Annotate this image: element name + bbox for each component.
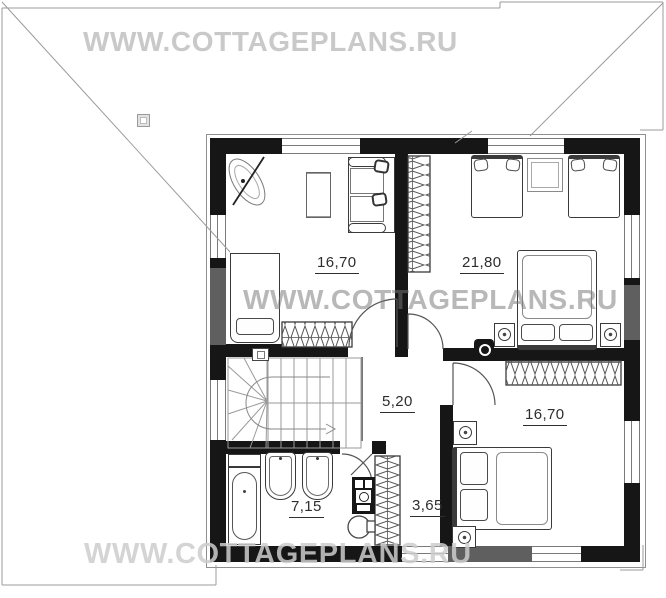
plant-decor [222, 153, 272, 211]
room-area-label-nursery: 21,80 [460, 255, 504, 272]
coffee-table [306, 172, 331, 218]
tap-icon [279, 457, 282, 460]
watermark-bottom: WWW.COTTAGEPLANS.RU [84, 538, 472, 571]
shaft-vent [355, 480, 363, 488]
stair-post-marker [252, 348, 269, 361]
tap-icon [316, 457, 319, 460]
shaft-vent [357, 505, 370, 511]
pillow-child-2b [602, 158, 618, 172]
pillow-nursery-b [559, 324, 593, 341]
nightstand-bedroom-top [453, 421, 477, 445]
toilet [348, 516, 375, 538]
pillow-living [236, 318, 274, 335]
staircase [228, 358, 361, 448]
watermark-middle: WWW.COTTAGEPLANS.RU [243, 284, 618, 316]
lamp-icon [604, 328, 617, 341]
pillow-child-2a [570, 158, 585, 172]
bathtub-drain [243, 490, 246, 493]
shaft-vent [365, 480, 372, 488]
bathtub-basin [232, 472, 257, 540]
door-nursery [408, 314, 443, 349]
door-bedroom [453, 363, 495, 405]
watermark-top: WWW.COTTAGEPLANS.RU [83, 26, 458, 58]
pillow-bedroom-b [460, 489, 488, 521]
sink-1 [265, 452, 296, 500]
sink-2 [302, 452, 333, 500]
sofa-pillow-1 [373, 159, 390, 174]
room-area-label-bathroom: 7,15 [289, 499, 324, 516]
sofa-pillow-2 [371, 192, 388, 207]
pillow-child-1a [473, 158, 489, 172]
nightstand-nursery-left [494, 323, 515, 347]
desk-nursery [527, 158, 563, 192]
bath-shelf [228, 454, 261, 467]
room-area-label-bedroom: 16,70 [523, 407, 567, 424]
pillow-child-1b [505, 158, 520, 172]
floor-plan-canvas: 16,70 21,80 5,20 16,70 7,15 3,65 WWW.COT… [0, 0, 666, 598]
sink-bowl [269, 456, 292, 496]
lamp-icon [498, 328, 511, 341]
utility-shaft [352, 477, 375, 514]
lamp-icon [459, 426, 472, 439]
room-area-label-closet: 3,65 [410, 498, 445, 515]
stair-direction-arrow [326, 424, 335, 434]
shaft-duct-ring [359, 492, 369, 502]
bathtub [228, 467, 261, 545]
nightstand-nursery-right [600, 323, 621, 347]
room-area-label-living: 16,70 [315, 255, 359, 272]
pillow-nursery-a [521, 324, 555, 341]
blanket-bedroom [496, 452, 548, 525]
pillow-bedroom-a [460, 452, 488, 485]
sofa-armrest-bottom [348, 223, 386, 233]
flue-block [474, 339, 494, 359]
sink-bowl [306, 456, 329, 496]
room-area-label-hall: 5,20 [380, 394, 415, 411]
